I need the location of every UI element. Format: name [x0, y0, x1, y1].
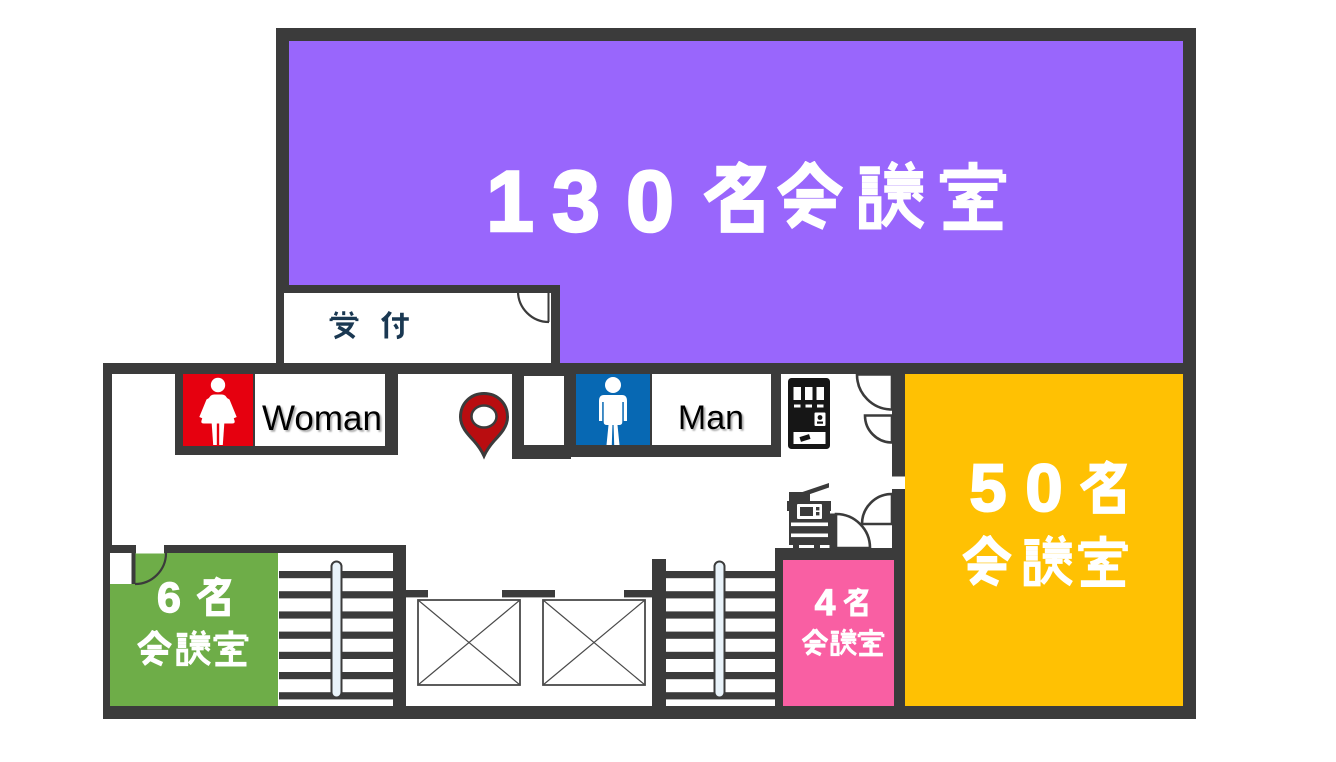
- svg-text:Woman: Woman: [262, 399, 382, 438]
- svg-text:6: 6: [157, 574, 181, 622]
- svg-text:5: 5: [969, 451, 1006, 526]
- svg-text:4: 4: [815, 582, 836, 623]
- svg-text:1: 1: [486, 154, 534, 250]
- svg-text:3: 3: [552, 154, 600, 250]
- svg-text:0: 0: [626, 154, 674, 250]
- svg-text:Man: Man: [678, 399, 744, 437]
- svg-text:0: 0: [1025, 451, 1062, 526]
